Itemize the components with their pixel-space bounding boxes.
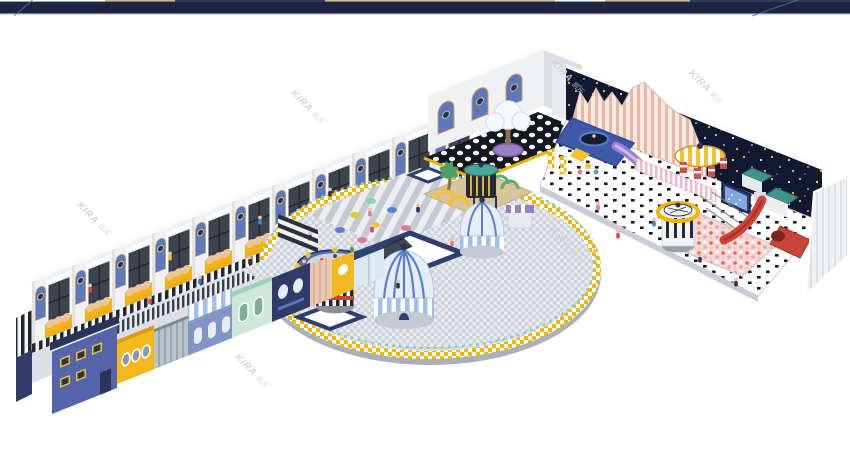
- end-cap-dark: [16, 350, 32, 402]
- top-bar: [0, 0, 850, 16]
- gate-post: [548, 150, 554, 168]
- gate-post: [560, 156, 566, 174]
- house-door: [100, 368, 111, 394]
- striped-column: [648, 117, 657, 143]
- lookout-tower: [658, 203, 698, 253]
- child-figure: [592, 134, 596, 138]
- top-bar-sliver: [105, 0, 850, 2]
- top-bar-sliver-segment: [325, 0, 555, 2]
- end-cap-striped: [16, 310, 32, 358]
- play-ball: [578, 170, 583, 175]
- striped-column: [636, 112, 645, 138]
- top-bar-sliver-segment: [555, 0, 605, 2]
- top-bar-sliver-segment: [105, 0, 175, 2]
- shop-peach: [310, 256, 332, 307]
- top-bar-sliver-segment: [690, 0, 850, 2]
- top-bar-sliver-segment: [605, 0, 690, 2]
- playground-render: [0, 0, 850, 470]
- kiosk-stand: [506, 205, 534, 228]
- play-ball: [594, 170, 599, 175]
- playground-design-render: KIRA 凯乐KIRA 凯乐KIRA 凯乐KIRA 凯乐KIRA 凯乐KIRA …: [0, 0, 850, 470]
- top-bar-bottom-line: [0, 13, 850, 14]
- play-ball: [585, 163, 591, 169]
- top-bar-band: [0, 2, 850, 14]
- top-bar-sliver-segment: [175, 0, 325, 2]
- room-left-return-wall: [552, 62, 566, 120]
